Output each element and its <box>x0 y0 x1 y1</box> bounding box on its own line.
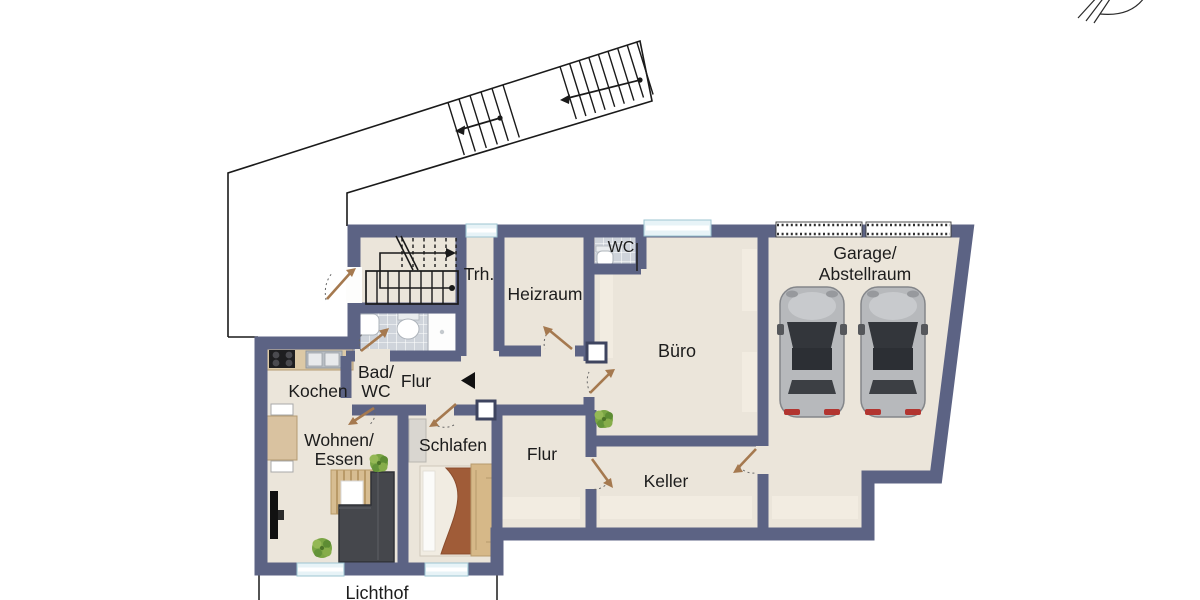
window-top-left <box>466 224 497 237</box>
label-buero: Büro <box>658 341 696 361</box>
window-schlafen <box>425 563 468 576</box>
kitchen-counter <box>266 348 353 370</box>
label-wohnen-1: Wohnen/ <box>304 430 374 450</box>
label-heizraum: Heizraum <box>508 284 583 304</box>
label-garage-1: Garage/ <box>833 243 896 263</box>
label-kochen: Kochen <box>288 381 347 401</box>
label-wc-top: WC <box>608 239 635 256</box>
compass-icon <box>1078 0 1144 23</box>
car-2 <box>858 287 928 417</box>
plant-wohnen <box>370 454 389 472</box>
plant-buero <box>595 410 614 428</box>
label-lichthof: Lichthof <box>345 583 409 600</box>
floor-plan-svg: Trh. Heizraum WC Büro Garage/ Abstellrau… <box>0 0 1200 600</box>
label-flur-upper: Flur <box>401 371 431 391</box>
window-top-wc <box>644 220 711 236</box>
exterior-staircase <box>448 42 653 155</box>
car-1 <box>777 287 847 417</box>
toilet <box>397 319 419 339</box>
label-bad-2: WC <box>361 381 390 401</box>
floor-plan-page: Trh. Heizraum WC Büro Garage/ Abstellrau… <box>0 0 1200 600</box>
dining-table <box>267 404 297 472</box>
window-wohnen <box>297 563 344 576</box>
plant-sofa <box>312 538 332 558</box>
label-schlafen: Schlafen <box>419 435 487 455</box>
label-keller: Keller <box>644 471 689 491</box>
bed <box>420 464 492 556</box>
label-bad-1: Bad/ <box>358 362 394 382</box>
label-wohnen-2: Essen <box>315 449 364 469</box>
label-trh: Trh. <box>464 264 494 284</box>
label-flur-lower: Flur <box>527 444 557 464</box>
label-garage-2: Abstellraum <box>819 264 911 284</box>
